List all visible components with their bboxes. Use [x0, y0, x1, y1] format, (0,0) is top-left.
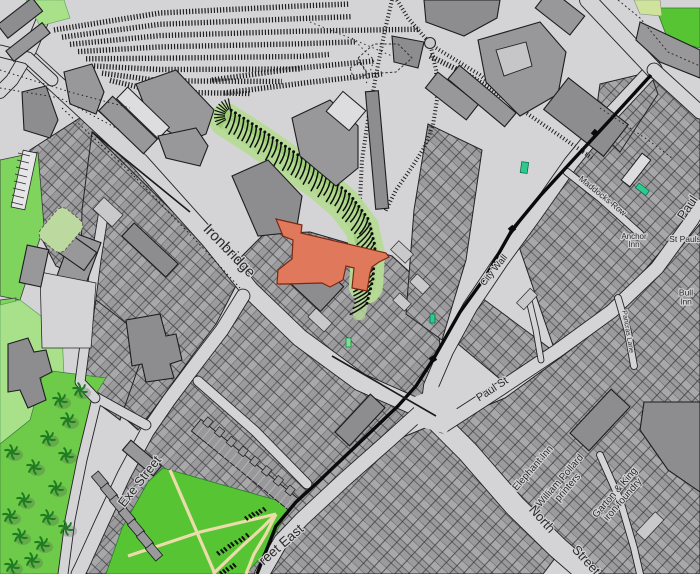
svg-text:BullInn: BullInn [679, 288, 693, 307]
svg-text:St Pauls: St Pauls [669, 234, 700, 244]
